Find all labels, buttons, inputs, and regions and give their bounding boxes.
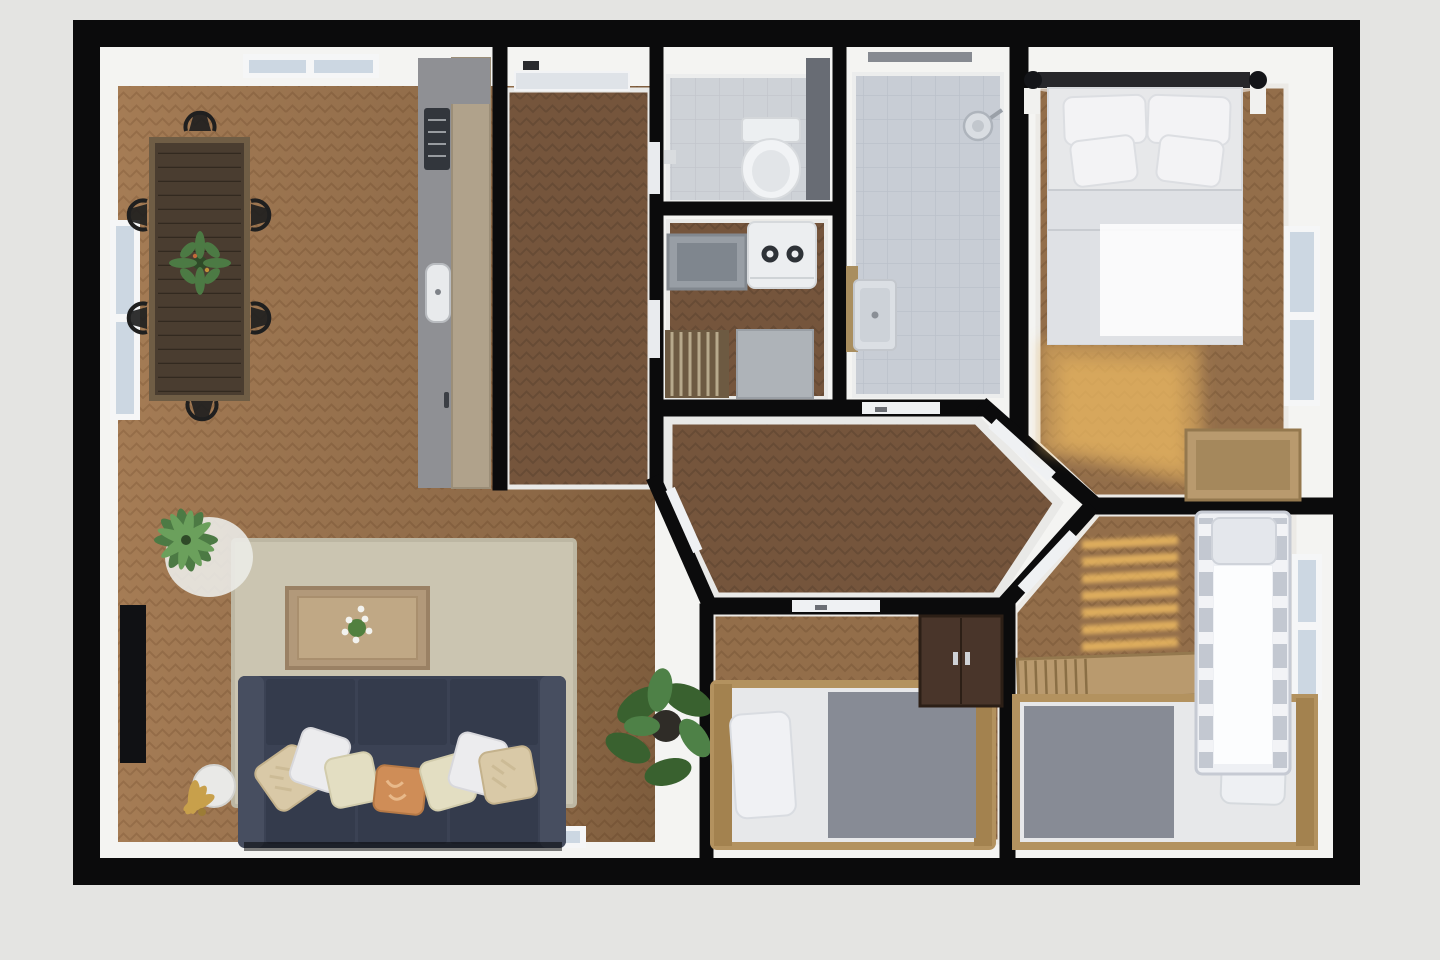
wc-wall-cabinet xyxy=(806,58,830,200)
cabinet-handle xyxy=(444,392,449,408)
bed-headboard xyxy=(714,684,732,846)
front-door xyxy=(515,72,629,90)
drying-rack xyxy=(665,330,729,398)
crib-mattress xyxy=(1214,566,1272,764)
stove xyxy=(424,108,450,170)
floor-plan-render xyxy=(0,0,1440,960)
wardrobe xyxy=(920,616,1002,706)
kitchen xyxy=(418,58,490,488)
dining-area xyxy=(129,113,270,420)
storage-bench xyxy=(1186,430,1300,500)
bathroom-door xyxy=(862,402,940,414)
wall-entry-left xyxy=(493,47,507,490)
ceiling-vent xyxy=(868,52,972,62)
tall-cabinet xyxy=(452,58,490,488)
front-door-handle xyxy=(523,61,539,70)
washing-machine xyxy=(748,222,816,288)
entry-hall-floor xyxy=(507,90,650,487)
crib xyxy=(1196,512,1290,774)
bed-blanket xyxy=(1024,706,1174,838)
master-window xyxy=(1284,226,1320,406)
wooden-bench xyxy=(1017,653,1206,702)
sofa-armrest-right xyxy=(540,676,566,848)
small-bedroom-door xyxy=(792,600,880,612)
small-bedroom-door-handle xyxy=(815,605,827,610)
bed-blanket xyxy=(828,692,976,838)
storage-box xyxy=(737,330,813,398)
wall-lamp-left xyxy=(1024,71,1042,89)
crib-pillow xyxy=(1212,518,1276,564)
bathroom-door-handle xyxy=(875,407,887,412)
counter-top-section xyxy=(418,58,490,104)
bed-pillow xyxy=(729,711,796,819)
nightstand-left xyxy=(1024,88,1040,114)
kids-window xyxy=(1292,554,1322,700)
wall-entry-right xyxy=(650,47,663,484)
laundry-crate xyxy=(668,235,746,289)
sofa-3-seat xyxy=(238,676,566,851)
wall-tv xyxy=(120,605,146,763)
bed-footboard xyxy=(974,684,992,846)
wall-wc-laundry xyxy=(663,202,833,215)
laundry-door xyxy=(648,300,660,358)
duvet-sun-highlight xyxy=(1100,224,1242,336)
wc-door xyxy=(648,142,660,194)
hallway-floor xyxy=(668,420,1058,597)
kitchen-sink xyxy=(426,264,450,322)
sofa-back-panel xyxy=(358,679,447,745)
single-bed xyxy=(714,684,992,846)
paper-holder xyxy=(664,150,676,164)
double-bed xyxy=(1048,88,1242,344)
nightstand-right xyxy=(1250,88,1266,114)
wall-wc-bath xyxy=(833,47,846,403)
coffee-table xyxy=(287,588,428,668)
top-skylight xyxy=(243,54,379,78)
toilet xyxy=(742,118,800,199)
headboard xyxy=(1038,72,1250,88)
bed-footboard xyxy=(1296,698,1314,846)
sofa-armrest-left xyxy=(238,676,264,848)
sofa-shadow xyxy=(244,842,562,851)
wall-lamp-right xyxy=(1249,71,1267,89)
